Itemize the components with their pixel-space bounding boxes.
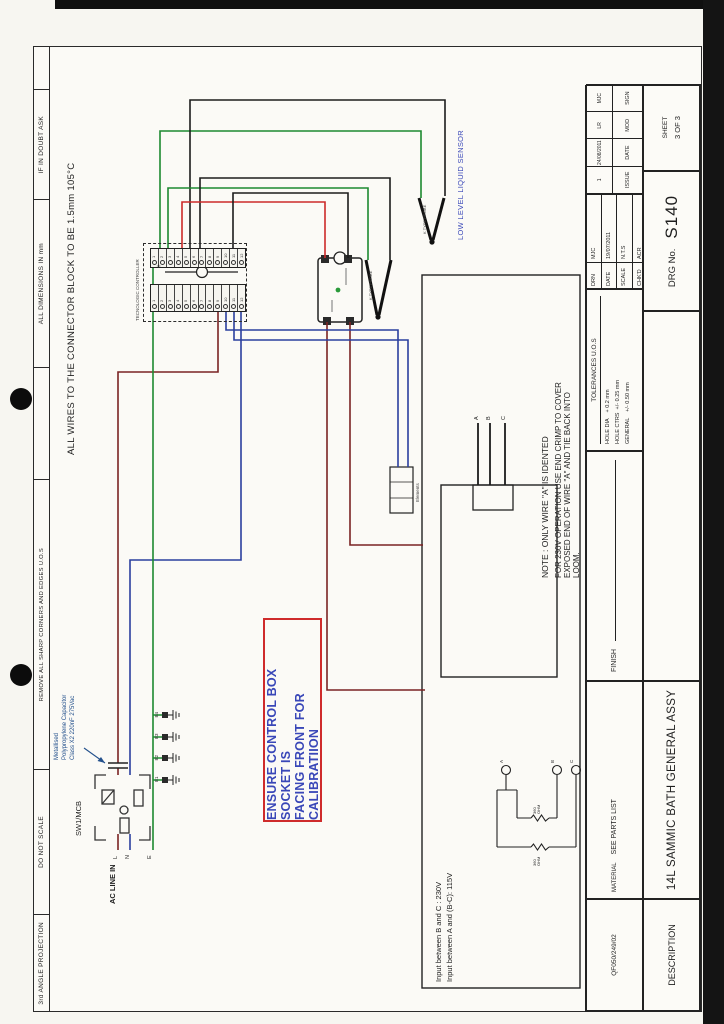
terminal: 7 [199, 249, 207, 267]
margin-strip: IF IN DOUBT ASK ALL DIMENSIONS IN mm REM… [33, 46, 50, 1012]
drg-number: S140 [662, 195, 682, 239]
issue-column: LR MOD [587, 111, 642, 138]
margin-cell: REMOVE ALL SHARP CORNERS AND EDGES U.O.S [33, 480, 50, 770]
earth-terminal-label: E4 [154, 704, 159, 726]
title-block: QF050/249/02 MATERIAL SEE PARTS LIST FIN… [585, 85, 700, 1012]
resistor-terminal-a: A [499, 760, 504, 763]
material-label: MATERIAL [612, 862, 618, 892]
terminal: 1 [151, 285, 159, 311]
note-line: EXPOSED END OF WIRE "A" AND TIE BACK INT… [563, 392, 572, 578]
drg-label: DRG No. [667, 249, 678, 288]
info-value: N.T.S [621, 246, 627, 262]
note-title: NOTE : ONLY WIRE "A" IS IDENTED [540, 436, 550, 578]
terminal-strip-lower: 123456789101112 [150, 284, 246, 312]
punch-hole [10, 664, 32, 686]
finish-label: FINISH [611, 649, 618, 672]
switch-label: SW1/MCB [74, 801, 83, 836]
tolerance-line: HOLE DIA + 0.2 mm [604, 296, 614, 444]
line-n-label: N [125, 855, 131, 859]
wires-spec-note: ALL WIRES TO THE CONNECTOR BLOCK TO BE 1… [66, 163, 77, 455]
terminal: 3 [167, 285, 175, 311]
tolerance-line: GENERAL +/- 0.50 mm [624, 296, 634, 444]
description-label-cell: DESCRIPTION [643, 899, 701, 1011]
tolerances-title: TOLERANCES U.O.S [591, 296, 601, 444]
heater-wire-c-label: C [501, 416, 507, 420]
drg-no-cell: DRG No. S140 [643, 171, 701, 311]
finish-cell: FINISH [586, 451, 643, 681]
terminal: 12 [238, 285, 245, 311]
issue-value: LR [587, 112, 613, 138]
warning-line: FACING FRONT FOR CALIBRATIION [293, 620, 321, 820]
capacitor-note-line: Polypropylene Capacitor [62, 695, 68, 760]
margin-note: DO NOT SCALE [38, 816, 45, 868]
resistor-terminal-b: B [550, 760, 555, 763]
ac-line-in-label: AC LINE IN [108, 864, 117, 904]
material-value: SEE PARTS LIST [611, 799, 618, 854]
margin-note: IF IN DOUBT ASK [38, 116, 45, 173]
margin-cell: IF IN DOUBT ASK [33, 90, 50, 200]
info-label: CHK'D [633, 262, 643, 288]
resistor1-value: 360 OHM [533, 802, 542, 814]
drawn-info-table: DRN MJC DATE 19/07/2011 SCALE N.T.S CHK'… [586, 194, 643, 289]
margin-note: REMOVE ALL SHARP CORNERS AND EDGES U.O.S [39, 548, 45, 701]
note-line: FOR 230V OPERATION USE END CRIMP TO COVE… [554, 382, 563, 578]
capacitor-note-line: Metallised [54, 733, 60, 760]
info-label: DATE [602, 262, 616, 288]
tolerances-cell: TOLERANCES U.O.S HOLE DIA + 0.2 mmHOLE C… [586, 289, 643, 451]
issue-table: 1 ISSUE 24/08/2011 DATE LR MOD MJC SIGN [586, 84, 643, 194]
margin-cell-empty [33, 46, 50, 90]
info-label: SCALE [617, 262, 631, 288]
tolerance-line: HOLE CTRS +/- 0.25 mm [614, 296, 624, 444]
heater-wire-a-label: A [474, 416, 480, 420]
controller-label: TECNOLOGIC CONTROLLER [135, 259, 140, 321]
terminal: 5 [183, 249, 191, 267]
earth-terminal-label: E3 [154, 726, 159, 748]
sheet-cell: SHEET 3 OF 3 [643, 84, 701, 171]
earth-terminal-labels: E1E2E3E4 [154, 704, 159, 790]
calibration-warning-box: ENSURE CONTROL BOX SOCKET IS FACING FRON… [263, 618, 322, 822]
info-row: DATE 19/07/2011 [602, 195, 617, 288]
issue-value: 1 [587, 167, 613, 193]
scanned-wiring-drawing: IF IN DOUBT ASK ALL DIMENSIONS IN mm REM… [0, 0, 724, 1024]
tolerances-list: HOLE DIA + 0.2 mmHOLE CTRS +/- 0.25 mmGE… [604, 296, 634, 444]
low-level-sensor-label: LOW LEVEL LIQUID SENSOR [456, 130, 465, 240]
scan-edge-top [55, 0, 724, 9]
issue-header: DATE [613, 140, 642, 166]
line-e-label: E [147, 855, 153, 859]
terminal: 2 [159, 285, 167, 311]
issue-header: SIGN [613, 85, 642, 111]
heater-wire-b-label: B [486, 416, 492, 420]
terminal: 5 [183, 285, 191, 311]
description-value-cell: 14L SAMMIC BATH GENERAL ASSY [643, 681, 701, 899]
margin-cell: ALL DIMENSIONS IN mm [33, 200, 50, 368]
terminal: 6 [191, 249, 199, 267]
probe2-label: K TYPE PROBE [368, 271, 373, 300]
issue-value: 24/08/2011 [587, 140, 613, 166]
polarity-minus: − [227, 264, 234, 268]
margin-note: 3rd ANGLE PROJECTION [38, 922, 45, 1005]
terminal: 9 [214, 249, 222, 267]
note-line: LOOM. [572, 552, 581, 578]
terminal: 10 [222, 285, 230, 311]
resistor-terminal-c: C [569, 760, 574, 763]
probe1-label: K TYPE PROBE [422, 205, 427, 234]
blank-cell [643, 311, 701, 681]
doc-code-cell: QF050/249/02 [586, 899, 643, 1011]
margin-cell: DO NOT SCALE [33, 770, 50, 915]
issue-column: MJC SIGN [587, 85, 642, 111]
terminal: 4 [175, 285, 183, 311]
description-label: DESCRIPTION [667, 924, 677, 986]
input-voltage-note-2: Input between A and (B-C): 115V [445, 873, 454, 982]
info-value: 19/07/2011 [606, 232, 612, 262]
punch-hole [10, 388, 32, 410]
terminal: 11 [230, 285, 238, 311]
issue-header: MOD [613, 112, 642, 138]
terminal: 8 [206, 285, 214, 311]
sheet-value: 3 OF 3 [673, 116, 682, 139]
info-value: MJC [591, 248, 597, 262]
info-row: SCALE N.T.S [617, 195, 632, 288]
margin-cell-empty [33, 368, 50, 480]
scan-edge-right [703, 0, 724, 1024]
line-l-label: L [113, 856, 119, 859]
info-value: ACR [637, 247, 643, 262]
sheet-label: SHEET [662, 117, 669, 139]
material-cell: MATERIAL SEE PARTS LIST [586, 681, 643, 899]
terminal: 9 [214, 285, 222, 311]
input-voltage-note-1: Input between B and C : 230V [434, 882, 443, 982]
polarity-plus: + [156, 264, 163, 268]
issue-value: MJC [587, 85, 613, 111]
info-row: DRN MJC [587, 195, 602, 288]
issue-column: 24/08/2011 DATE [587, 139, 642, 166]
resistor2-value: 360 OHM [533, 854, 542, 866]
earth-terminal-label: E2 [154, 747, 159, 769]
capacitor-note-line: Class X2 220nF 275Vac [70, 696, 76, 760]
margin-cell: 3rd ANGLE PROJECTION [33, 915, 50, 1012]
terminal: 12 [238, 249, 245, 267]
terminal: 3 [167, 249, 175, 267]
issue-header: ISSUE [613, 167, 642, 193]
terminal: 6 [191, 285, 199, 311]
issue-column: 1 ISSUE [587, 166, 642, 193]
terminal: 7 [199, 285, 207, 311]
description-value: 14L SAMMIC BATH GENERAL ASSY [666, 690, 678, 890]
terminal: 4 [175, 249, 183, 267]
terminal: 8 [206, 249, 214, 267]
warning-line: ENSURE CONTROL BOX SOCKET IS [265, 620, 293, 820]
doc-code: QF050/249/02 [611, 934, 618, 976]
info-row: CHK'D ACR [633, 195, 643, 288]
info-label: DRN [587, 262, 601, 288]
elements-connector-label: Elements [415, 483, 420, 502]
margin-note: ALL DIMENSIONS IN mm [38, 243, 45, 324]
earth-terminal-label: E1 [154, 769, 159, 791]
finish-blank-line [614, 460, 616, 641]
